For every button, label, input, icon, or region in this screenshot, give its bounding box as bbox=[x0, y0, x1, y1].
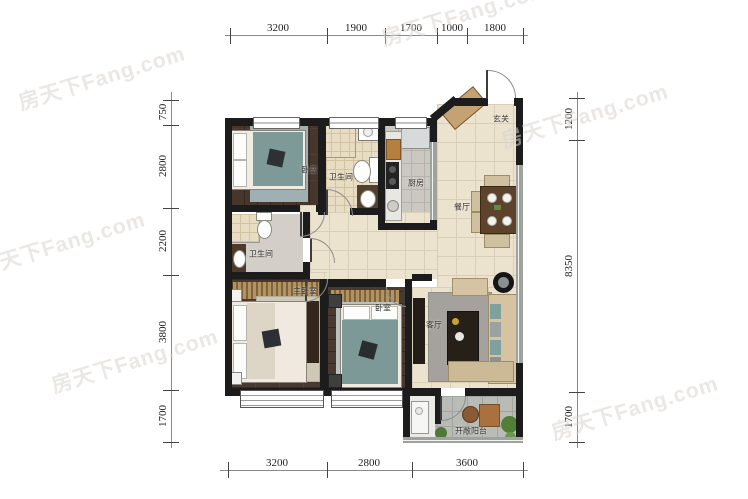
dim-tick bbox=[163, 125, 179, 126]
dim-label-left-0: 750 bbox=[157, 104, 169, 121]
dim-tick bbox=[569, 140, 585, 141]
table-garnish bbox=[494, 205, 501, 210]
window-right-band bbox=[516, 165, 523, 363]
watermark: 房天下Fang.com bbox=[377, 0, 551, 53]
watermark: 房天下Fang.com bbox=[497, 75, 671, 154]
watermark: 房天下Fang.com bbox=[47, 320, 221, 399]
room-label-living: 客厅 bbox=[426, 320, 442, 331]
wall-master-divider bbox=[320, 279, 328, 396]
wall-living-stub bbox=[412, 274, 432, 281]
dim-label-right-1: 8350 bbox=[563, 255, 575, 277]
shower-area bbox=[322, 124, 356, 158]
nightstand bbox=[328, 374, 342, 388]
water-heater bbox=[411, 401, 429, 434]
sofa-cushion bbox=[490, 340, 501, 355]
speaker bbox=[493, 272, 514, 293]
wall-bottom bbox=[465, 388, 523, 396]
dim-tick bbox=[163, 275, 179, 276]
plate bbox=[487, 216, 497, 226]
dim-tick bbox=[230, 28, 231, 44]
console-table bbox=[452, 278, 488, 296]
toilet-bowl bbox=[257, 220, 272, 239]
vanity-sink bbox=[360, 190, 376, 208]
balcony-chair bbox=[479, 404, 500, 427]
dim-tick bbox=[569, 442, 585, 443]
wall-bedroom-bottom bbox=[225, 205, 300, 212]
sofa-cushion bbox=[490, 322, 501, 337]
dim-tick bbox=[467, 28, 468, 44]
dim-line-right bbox=[577, 92, 578, 448]
dim-label-bottom-0: 3200 bbox=[266, 457, 288, 469]
dim-label-bottom-1: 2800 bbox=[358, 457, 380, 469]
dim-line-bottom bbox=[220, 470, 528, 471]
dining-table bbox=[480, 186, 517, 234]
kitchen-cabinet bbox=[386, 139, 401, 160]
sofa-cushion bbox=[490, 304, 501, 319]
dim-label-left-4: 1700 bbox=[157, 405, 169, 427]
dim-tick bbox=[228, 462, 229, 478]
room-label-balcony: 开敞阳台 bbox=[455, 426, 487, 437]
nightstand bbox=[328, 294, 342, 308]
stove-burner bbox=[389, 166, 396, 173]
kitchen-sliding-door bbox=[430, 142, 437, 220]
window-top-bedroom bbox=[253, 117, 300, 129]
wall-kitchen-bottom bbox=[378, 223, 437, 230]
bed-throw bbox=[267, 149, 286, 168]
wall-kitchen-right bbox=[430, 122, 437, 142]
room-label-dining: 餐厅 bbox=[454, 202, 470, 213]
fridge bbox=[401, 127, 430, 149]
dim-label-top-0: 3200 bbox=[267, 22, 289, 34]
vanity-sink bbox=[233, 250, 246, 268]
entry-door-arc bbox=[488, 70, 516, 98]
table-decor bbox=[455, 332, 464, 341]
stove-burner bbox=[389, 178, 396, 185]
dim-tick bbox=[327, 28, 328, 44]
dim-tick bbox=[327, 462, 328, 478]
bed-pillow bbox=[343, 306, 370, 320]
balcony-railing bbox=[403, 437, 523, 443]
tv-cabinet bbox=[413, 298, 425, 364]
dim-tick bbox=[163, 442, 179, 443]
sofa-chaise bbox=[448, 361, 514, 382]
dim-tick bbox=[412, 462, 413, 478]
room-label-bedroom2: 卧室 bbox=[375, 303, 391, 314]
watermark: 房天下Fang.com bbox=[0, 203, 149, 282]
room-label-bath-top: 卫生间 bbox=[329, 172, 353, 183]
room-label-bath-mid: 卫生间 bbox=[249, 249, 273, 260]
window-top-kitchen bbox=[395, 117, 427, 129]
wall-balcony-left bbox=[403, 396, 410, 443]
heater-knob bbox=[415, 407, 423, 415]
toilet-bowl bbox=[353, 160, 371, 183]
wall-bedroom2-living bbox=[405, 279, 412, 396]
balcony-table bbox=[462, 406, 479, 423]
kitchen-sink bbox=[387, 200, 399, 212]
room-label-master: 主卧室 bbox=[293, 286, 317, 297]
dim-tick bbox=[163, 100, 179, 101]
floorplan-canvas: 卧室 卫生间 厨房 玄关 餐厅 卫生间 主卧室 卧室 客厅 开敞阳台 3200 … bbox=[0, 0, 748, 499]
window-bottom-master bbox=[240, 390, 324, 408]
bed-pillow bbox=[233, 160, 247, 187]
plate bbox=[487, 193, 497, 203]
dining-chair bbox=[484, 234, 510, 248]
wall-bath-kitchen bbox=[378, 122, 385, 230]
bed-throw bbox=[262, 329, 282, 349]
dim-label-top-4: 1800 bbox=[484, 22, 506, 34]
dim-tick bbox=[163, 390, 179, 391]
wall-bath-mid-bottom bbox=[225, 272, 305, 279]
plate bbox=[502, 193, 512, 203]
dim-tick bbox=[523, 462, 524, 478]
dim-tick bbox=[569, 392, 585, 393]
plate bbox=[502, 216, 512, 226]
dresser bbox=[307, 301, 319, 363]
dim-line-left bbox=[171, 92, 172, 448]
room-label-bedroom-top: 卧室 bbox=[301, 165, 317, 176]
dim-label-left-1: 2800 bbox=[157, 155, 169, 177]
dim-line-top bbox=[225, 35, 528, 36]
window-bottom-bedroom2 bbox=[331, 390, 403, 408]
table-decor bbox=[452, 318, 459, 325]
window-top-bath bbox=[329, 117, 379, 129]
dim-label-bottom-2: 3600 bbox=[456, 457, 478, 469]
room-label-kitchen: 厨房 bbox=[408, 178, 424, 189]
dim-label-left-2: 2200 bbox=[157, 230, 169, 252]
wall-bedroom-bath bbox=[318, 122, 326, 212]
dim-tick bbox=[163, 208, 179, 209]
wall-left bbox=[225, 118, 232, 396]
wall-bedroom2-top bbox=[327, 279, 386, 287]
dim-label-top-1: 1900 bbox=[345, 22, 367, 34]
wall-entry-top bbox=[455, 98, 488, 106]
dim-tick bbox=[523, 28, 524, 44]
bed-pillow bbox=[233, 305, 247, 341]
bed-pillow bbox=[233, 133, 247, 160]
